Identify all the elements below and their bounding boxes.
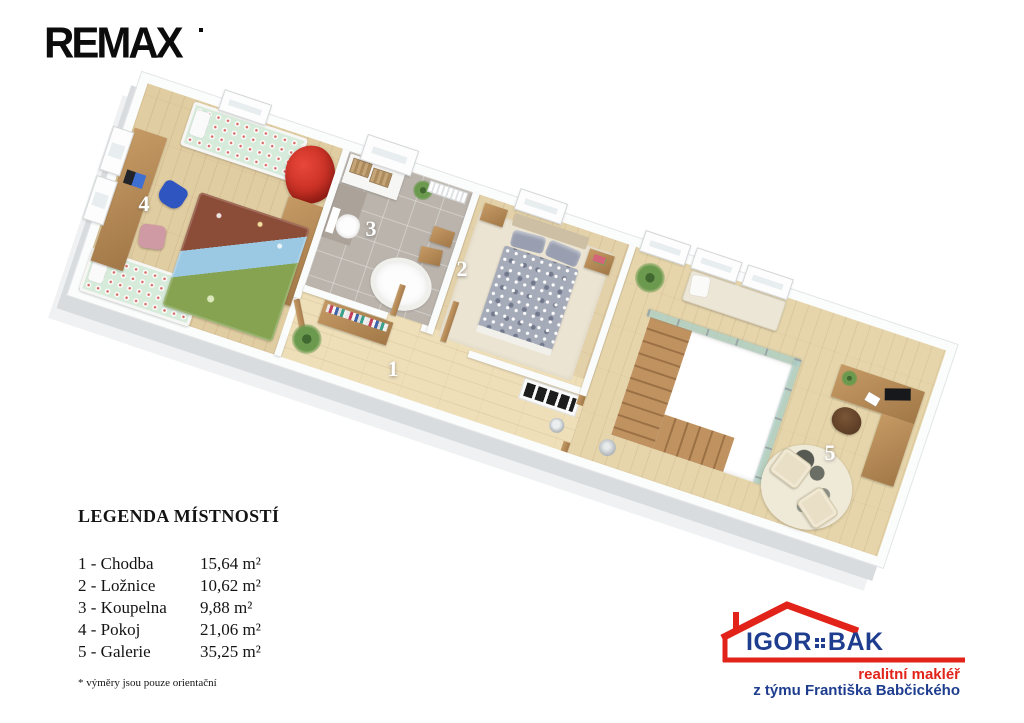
four-dots-separator-icon: [815, 633, 825, 650]
legend-room-label: 2 - Ložnice: [78, 575, 200, 597]
legend-row: 5 - Galerie 35,25 m²: [78, 641, 290, 663]
legend-room-label: 5 - Galerie: [78, 641, 200, 663]
pillow: [689, 275, 710, 298]
remax-logo: REMAX: [44, 18, 181, 68]
agent-tagline-2: z týmu Františka Babčického: [700, 682, 960, 699]
page: REMAX: [0, 0, 1024, 723]
legend-room-area: 21,06 m²: [200, 619, 290, 641]
floor-plan-building: [67, 72, 957, 568]
agent-logo: IGORBAK realitní makléř z týmu Františka…: [700, 592, 990, 707]
legend-room-label: 3 - Koupelna: [78, 597, 200, 619]
room-number-label: 1: [388, 356, 399, 382]
legend-room-area: 10,62 m²: [200, 575, 290, 597]
legend-room-label: 4 - Pokoj: [78, 619, 200, 641]
legend-row: 2 - Ložnice 10,62 m²: [78, 575, 290, 597]
legend-row: 3 - Koupelna 9,88 m²: [78, 597, 290, 619]
legend-room-area: 15,64 m²: [200, 553, 290, 575]
agent-name-left: IGOR: [746, 628, 812, 656]
remax-trademark-icon: [199, 28, 203, 32]
agent-name: IGORBAK: [746, 628, 884, 657]
legend-rows: 1 - Chodba 15,64 m² 2 - Ložnice 10,62 m²…: [78, 553, 290, 663]
legend-room-label: 1 - Chodba: [78, 553, 200, 575]
room-number-label: 3: [366, 216, 377, 242]
chair: [138, 223, 167, 251]
room-number-label: 4: [139, 191, 150, 217]
legend-room-area: 9,88 m²: [200, 597, 290, 619]
legend-room-area: 35,25 m²: [200, 641, 290, 663]
computer-monitor: [885, 388, 911, 400]
room-number-label: 2: [457, 256, 468, 282]
legend-title: LEGENDA MÍSTNOSTÍ: [78, 506, 290, 527]
agent-name-right: BAK: [828, 628, 884, 656]
legend-row: 4 - Pokoj 21,06 m²: [78, 619, 290, 641]
agent-tagline-1: realitní makléř: [700, 666, 960, 683]
legend: LEGENDA MÍSTNOSTÍ 1 - Chodba 15,64 m² 2 …: [78, 506, 290, 689]
room-number-label: 5: [825, 440, 836, 466]
legend-row: 1 - Chodba 15,64 m²: [78, 553, 290, 575]
legend-footnote: * výměry jsou pouze orientační: [78, 677, 290, 689]
